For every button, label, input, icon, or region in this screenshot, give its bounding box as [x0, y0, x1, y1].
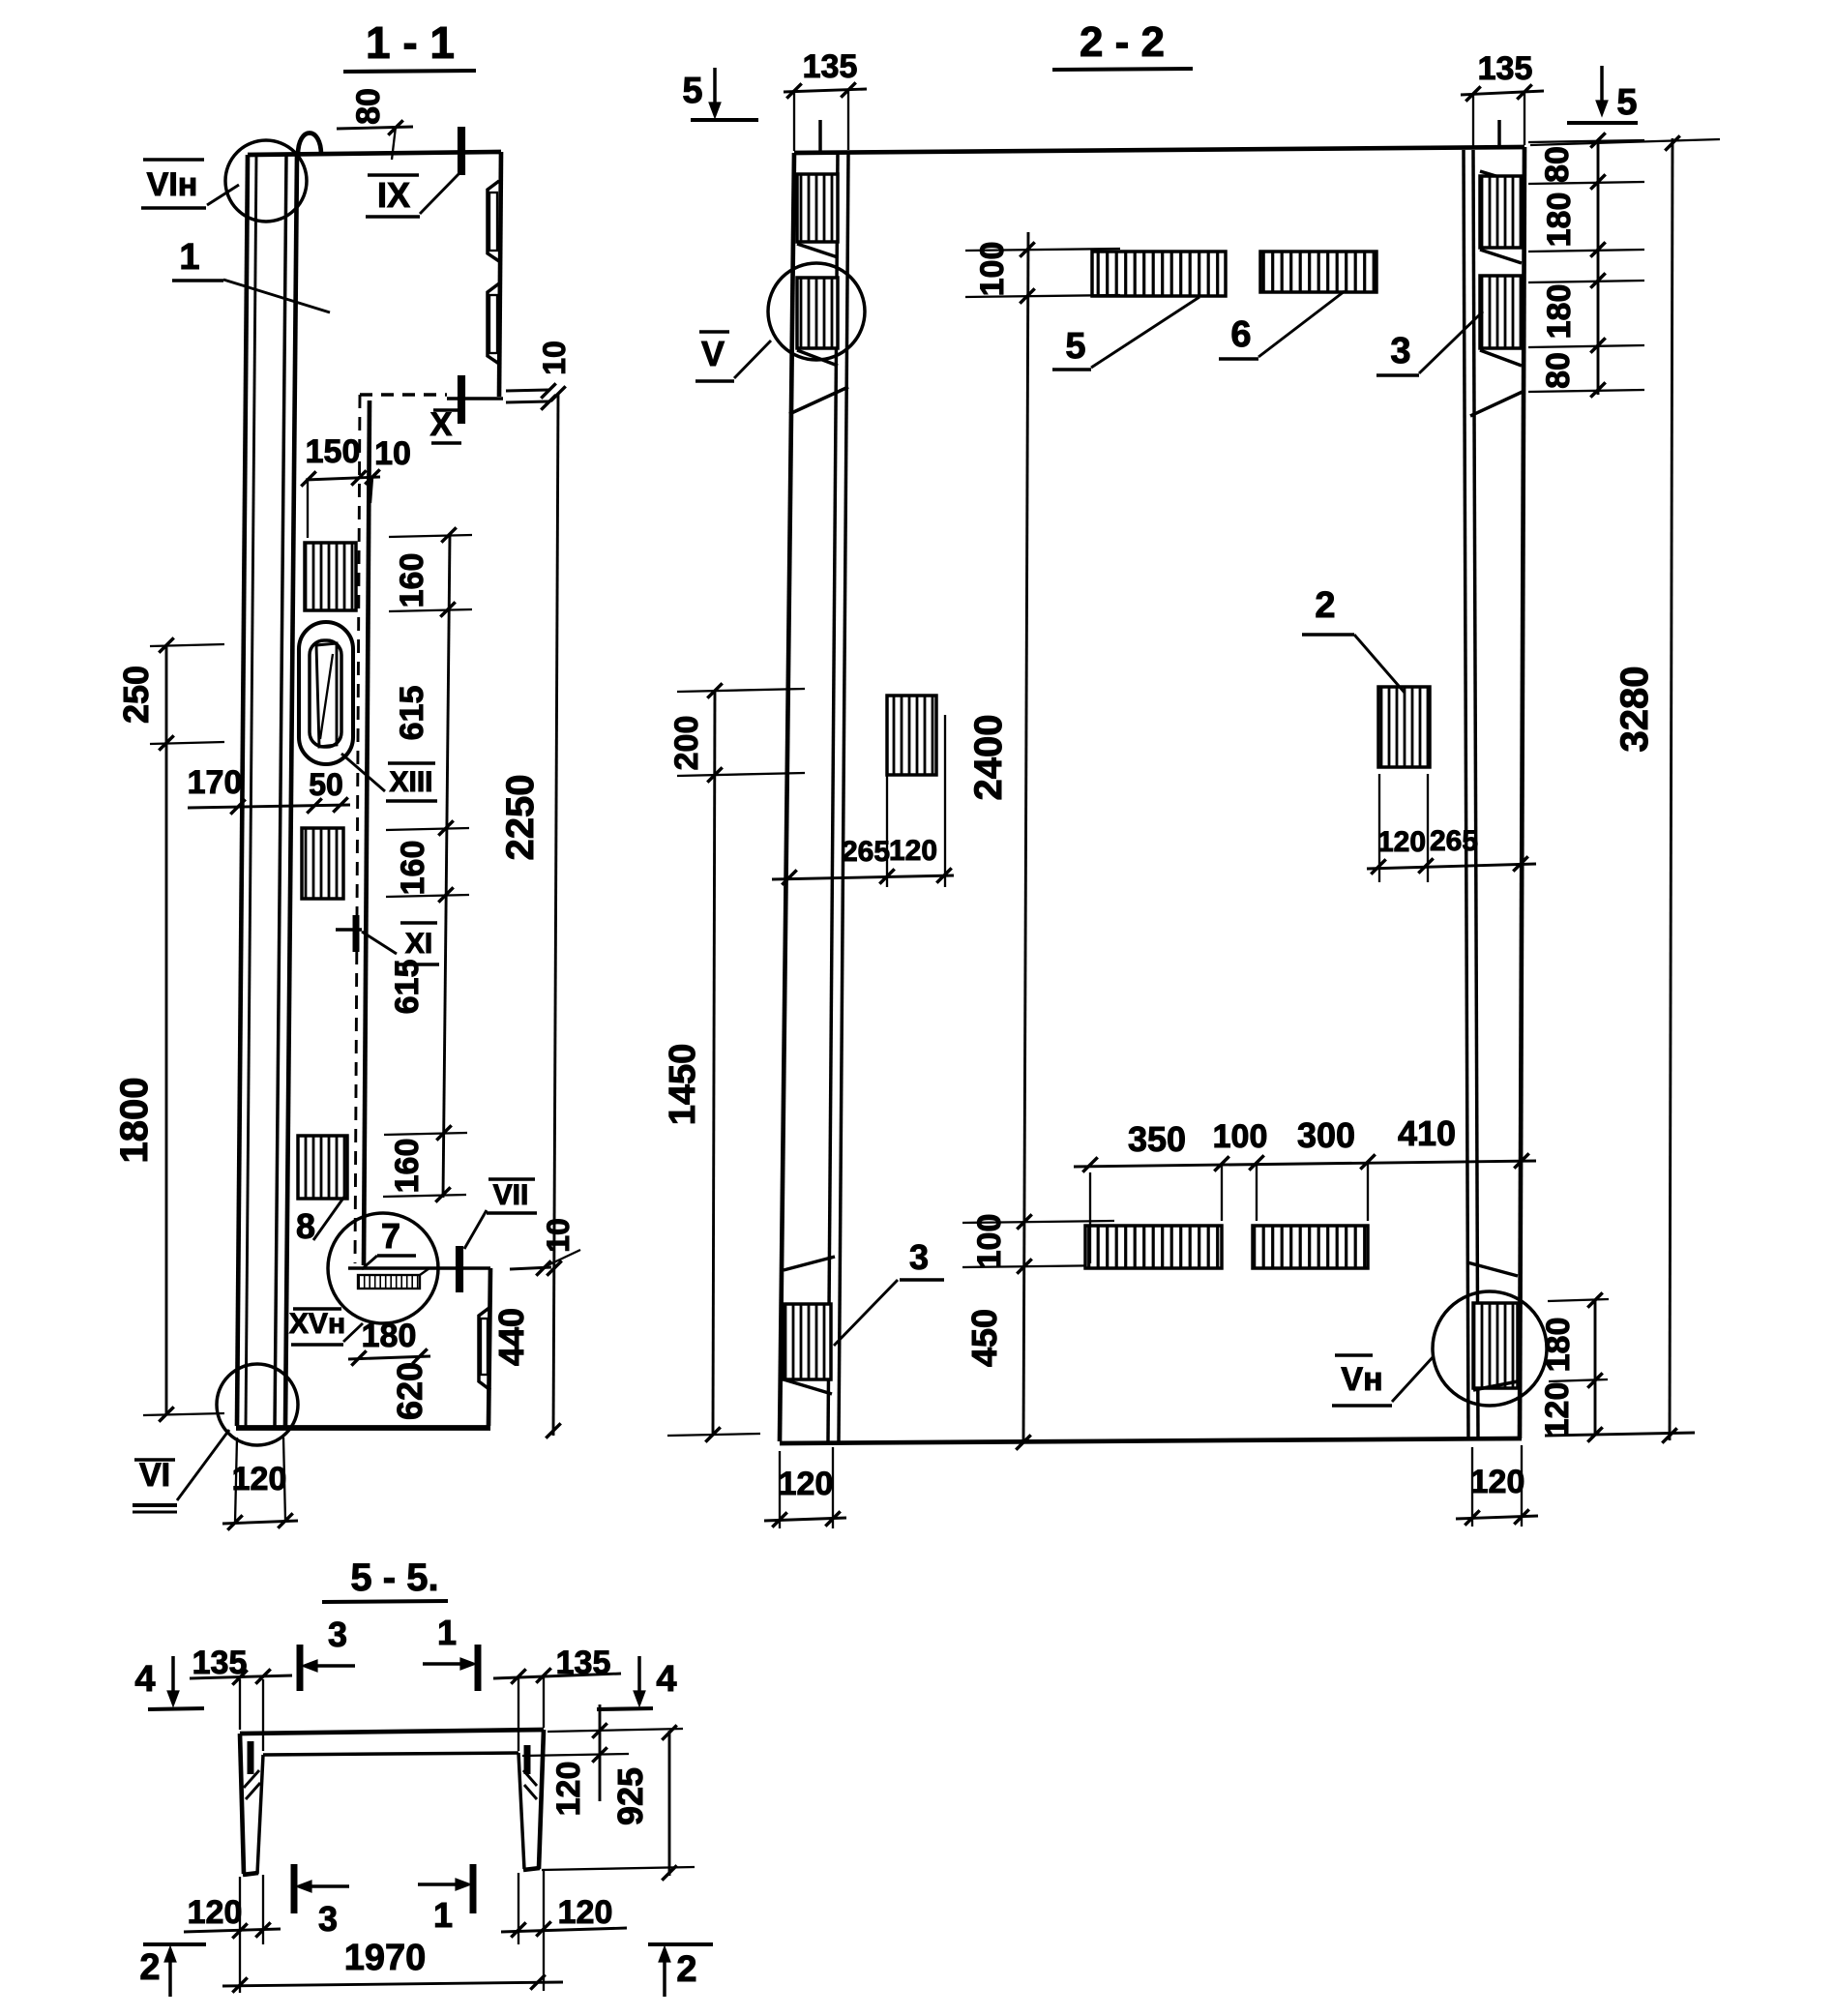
svg-text:120: 120 — [1470, 1464, 1525, 1500]
svg-text:440: 440 — [491, 1308, 531, 1366]
svg-text:620: 620 — [390, 1362, 429, 1420]
svg-text:615: 615 — [389, 960, 426, 1015]
svg-text:4: 4 — [656, 1659, 676, 1700]
svg-text:410: 410 — [1398, 1113, 1456, 1153]
svg-text:120: 120 — [550, 1762, 587, 1817]
svg-text:3: 3 — [1390, 331, 1410, 371]
svg-text:10: 10 — [537, 341, 572, 375]
svg-text:120: 120 — [779, 1466, 834, 1502]
svg-text:135: 135 — [803, 48, 858, 85]
svg-text:50: 50 — [309, 767, 343, 802]
svg-text:3: 3 — [328, 1615, 347, 1654]
svg-text:7: 7 — [381, 1216, 400, 1256]
svg-text:8: 8 — [296, 1206, 315, 1246]
svg-text:2: 2 — [676, 1949, 696, 1990]
svg-text:180: 180 — [1541, 193, 1578, 248]
svg-text:5: 5 — [1616, 82, 1637, 123]
svg-text:2400: 2400 — [967, 715, 1010, 801]
svg-text:120: 120 — [232, 1461, 287, 1497]
svg-text:450: 450 — [964, 1309, 1004, 1367]
svg-text:135: 135 — [1478, 50, 1533, 87]
svg-text:IX: IX — [377, 175, 410, 215]
svg-text:120: 120 — [558, 1894, 613, 1931]
svg-text:5: 5 — [682, 71, 702, 111]
svg-text:3280: 3280 — [1613, 667, 1656, 753]
svg-text:1: 1 — [179, 237, 199, 278]
svg-text:XIII: XIII — [389, 766, 432, 798]
svg-text:2250: 2250 — [499, 775, 542, 861]
svg-text:120: 120 — [188, 1894, 243, 1931]
svg-text:1: 1 — [433, 1895, 453, 1935]
svg-text:180: 180 — [362, 1318, 417, 1354]
svg-text:10: 10 — [374, 435, 411, 472]
svg-text:100: 100 — [1213, 1118, 1268, 1155]
svg-text:120: 120 — [889, 835, 937, 867]
svg-text:265: 265 — [842, 836, 890, 868]
svg-text:200: 200 — [668, 716, 705, 771]
svg-text:100: 100 — [971, 1214, 1008, 1269]
svg-text:160: 160 — [395, 841, 431, 896]
svg-text:5: 5 — [1065, 326, 1085, 367]
svg-text:VIн: VIн — [147, 166, 198, 203]
svg-text:250: 250 — [116, 666, 156, 724]
svg-text:4: 4 — [134, 1659, 155, 1700]
svg-text:300: 300 — [1297, 1115, 1355, 1155]
svg-text:V: V — [701, 334, 725, 373]
svg-text:120: 120 — [1377, 826, 1426, 858]
svg-text:5 - 5.: 5 - 5. — [350, 1556, 438, 1599]
svg-text:1800: 1800 — [113, 1078, 156, 1164]
svg-text:80: 80 — [1540, 352, 1577, 389]
svg-text:160: 160 — [394, 553, 430, 608]
svg-text:3: 3 — [318, 1899, 338, 1939]
svg-text:615: 615 — [394, 686, 430, 741]
svg-text:1: 1 — [437, 1613, 457, 1652]
svg-text:Vн: Vн — [1341, 1361, 1382, 1398]
svg-text:120: 120 — [1539, 1382, 1576, 1438]
svg-text:265: 265 — [1430, 825, 1478, 857]
svg-text:1 - 1: 1 - 1 — [366, 17, 455, 68]
svg-text:VII: VII — [493, 1179, 529, 1211]
svg-text:1970: 1970 — [344, 1938, 427, 1978]
svg-text:2 - 2: 2 - 2 — [1080, 18, 1165, 66]
svg-text:350: 350 — [1128, 1119, 1186, 1159]
svg-text:925: 925 — [610, 1767, 650, 1825]
svg-text:XVн: XVн — [289, 1308, 345, 1340]
svg-text:100: 100 — [974, 242, 1011, 297]
svg-text:2: 2 — [1315, 585, 1335, 626]
svg-text:80: 80 — [350, 88, 387, 125]
svg-text:6: 6 — [1230, 314, 1251, 355]
svg-text:1450: 1450 — [663, 1044, 703, 1126]
svg-text:XI: XI — [405, 928, 432, 960]
svg-text:150: 150 — [306, 433, 361, 470]
svg-text:10: 10 — [541, 1218, 576, 1253]
svg-text:80: 80 — [1539, 146, 1576, 183]
svg-text:170: 170 — [188, 764, 243, 801]
svg-text:180: 180 — [1540, 1318, 1577, 1373]
svg-text:160: 160 — [389, 1139, 426, 1194]
svg-text:2: 2 — [139, 1947, 160, 1988]
svg-text:VI: VI — [139, 1457, 170, 1494]
svg-text:3: 3 — [909, 1237, 929, 1277]
svg-text:180: 180 — [1541, 284, 1578, 340]
